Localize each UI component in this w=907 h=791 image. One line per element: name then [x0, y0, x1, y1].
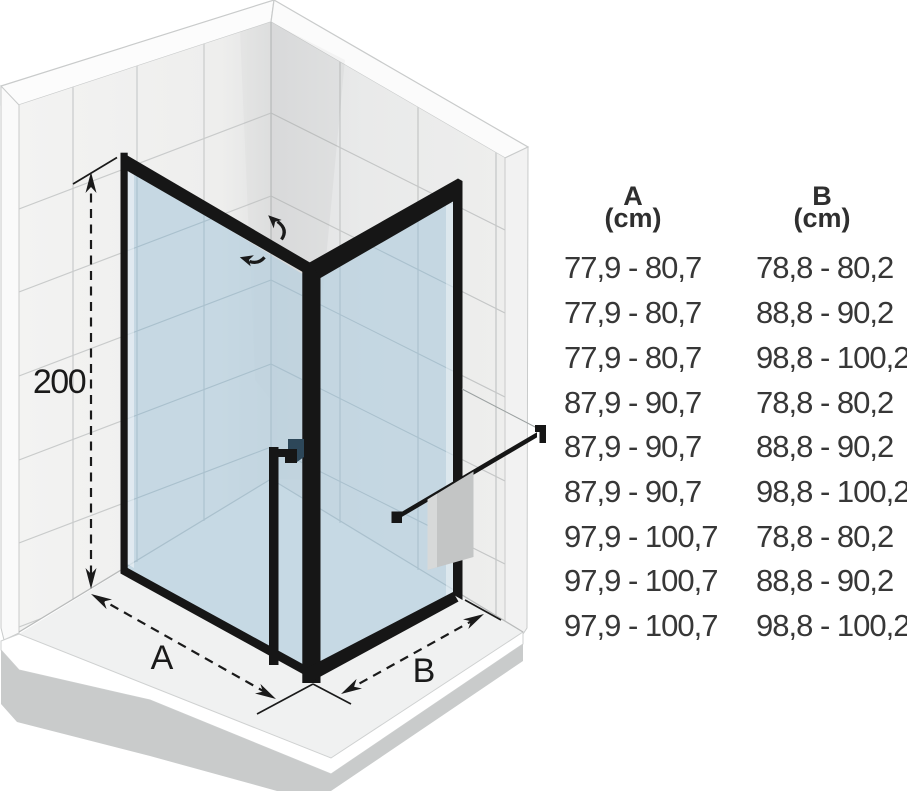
- svg-text:88,8 - 90,2: 88,8 - 90,2: [756, 295, 893, 330]
- svg-text:A: A: [151, 639, 174, 677]
- svg-text:98,8 - 100,2: 98,8 - 100,2: [756, 474, 907, 509]
- svg-text:200: 200: [33, 363, 86, 401]
- svg-text:98,8 - 100,2: 98,8 - 100,2: [756, 340, 907, 375]
- svg-text:97,9 - 100,7: 97,9 - 100,7: [564, 608, 717, 643]
- svg-text:87,9 - 90,7: 87,9 - 90,7: [564, 474, 701, 509]
- svg-text:87,9 - 90,7: 87,9 - 90,7: [564, 429, 701, 464]
- svg-text:77,9 - 80,7: 77,9 - 80,7: [564, 250, 701, 285]
- svg-text:98,8 - 100,2: 98,8 - 100,2: [756, 608, 907, 643]
- svg-text:97,9 - 100,7: 97,9 - 100,7: [564, 563, 717, 598]
- svg-text:88,8 - 90,2: 88,8 - 90,2: [756, 563, 893, 598]
- svg-text:B: B: [413, 652, 436, 690]
- svg-text:97,9 - 100,7: 97,9 - 100,7: [564, 519, 717, 554]
- svg-text:(cm): (cm): [604, 203, 661, 233]
- svg-text:78,8 - 80,2: 78,8 - 80,2: [756, 250, 893, 285]
- svg-text:88,8 - 90,2: 88,8 - 90,2: [756, 429, 893, 464]
- svg-text:87,9 - 90,7: 87,9 - 90,7: [564, 385, 701, 420]
- svg-text:(cm): (cm): [793, 203, 850, 233]
- svg-text:78,8 - 80,2: 78,8 - 80,2: [756, 385, 893, 420]
- svg-text:77,9 - 80,7: 77,9 - 80,7: [564, 295, 701, 330]
- svg-text:78,8 - 80,2: 78,8 - 80,2: [756, 519, 893, 554]
- svg-text:77,9 - 80,7: 77,9 - 80,7: [564, 340, 701, 375]
